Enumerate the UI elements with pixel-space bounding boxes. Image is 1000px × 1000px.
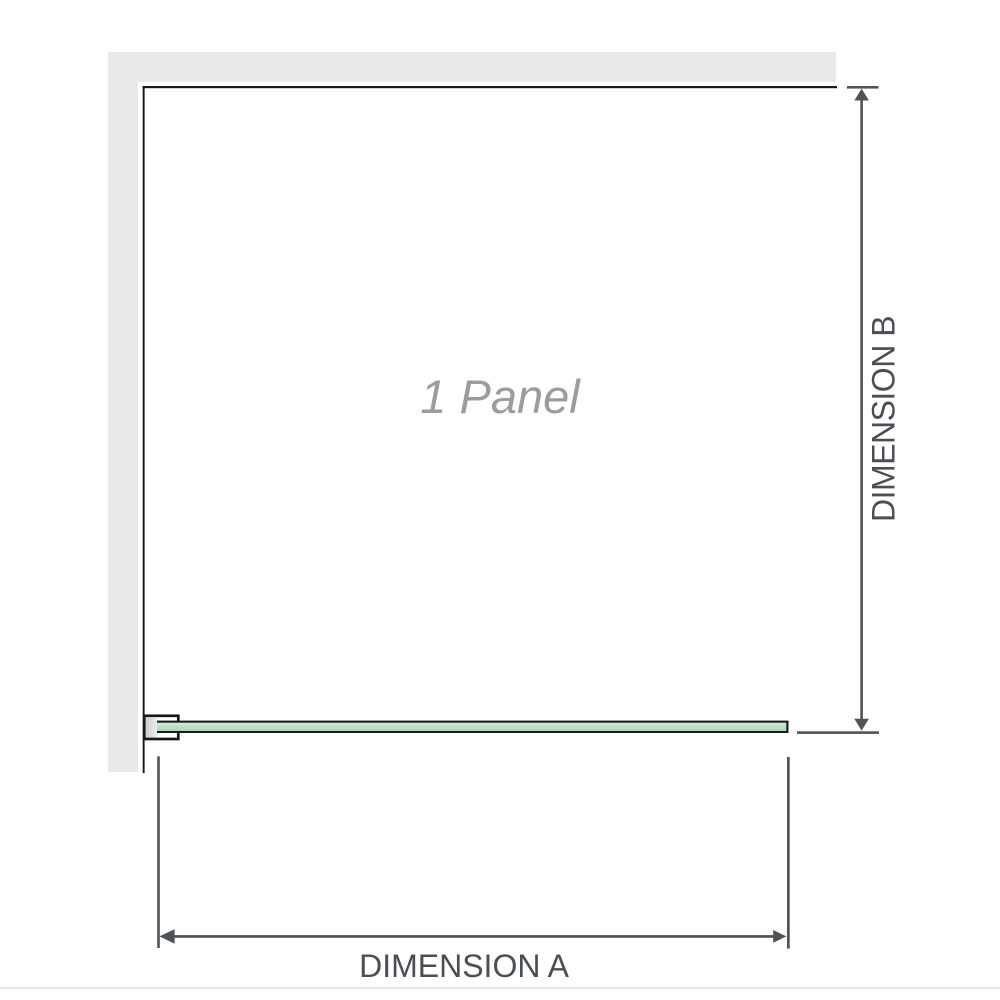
svg-text:DIMENSION A: DIMENSION A — [359, 948, 569, 984]
svg-text:1 Panel: 1 Panel — [420, 370, 581, 423]
svg-text:DIMENSION B: DIMENSION B — [866, 316, 902, 522]
